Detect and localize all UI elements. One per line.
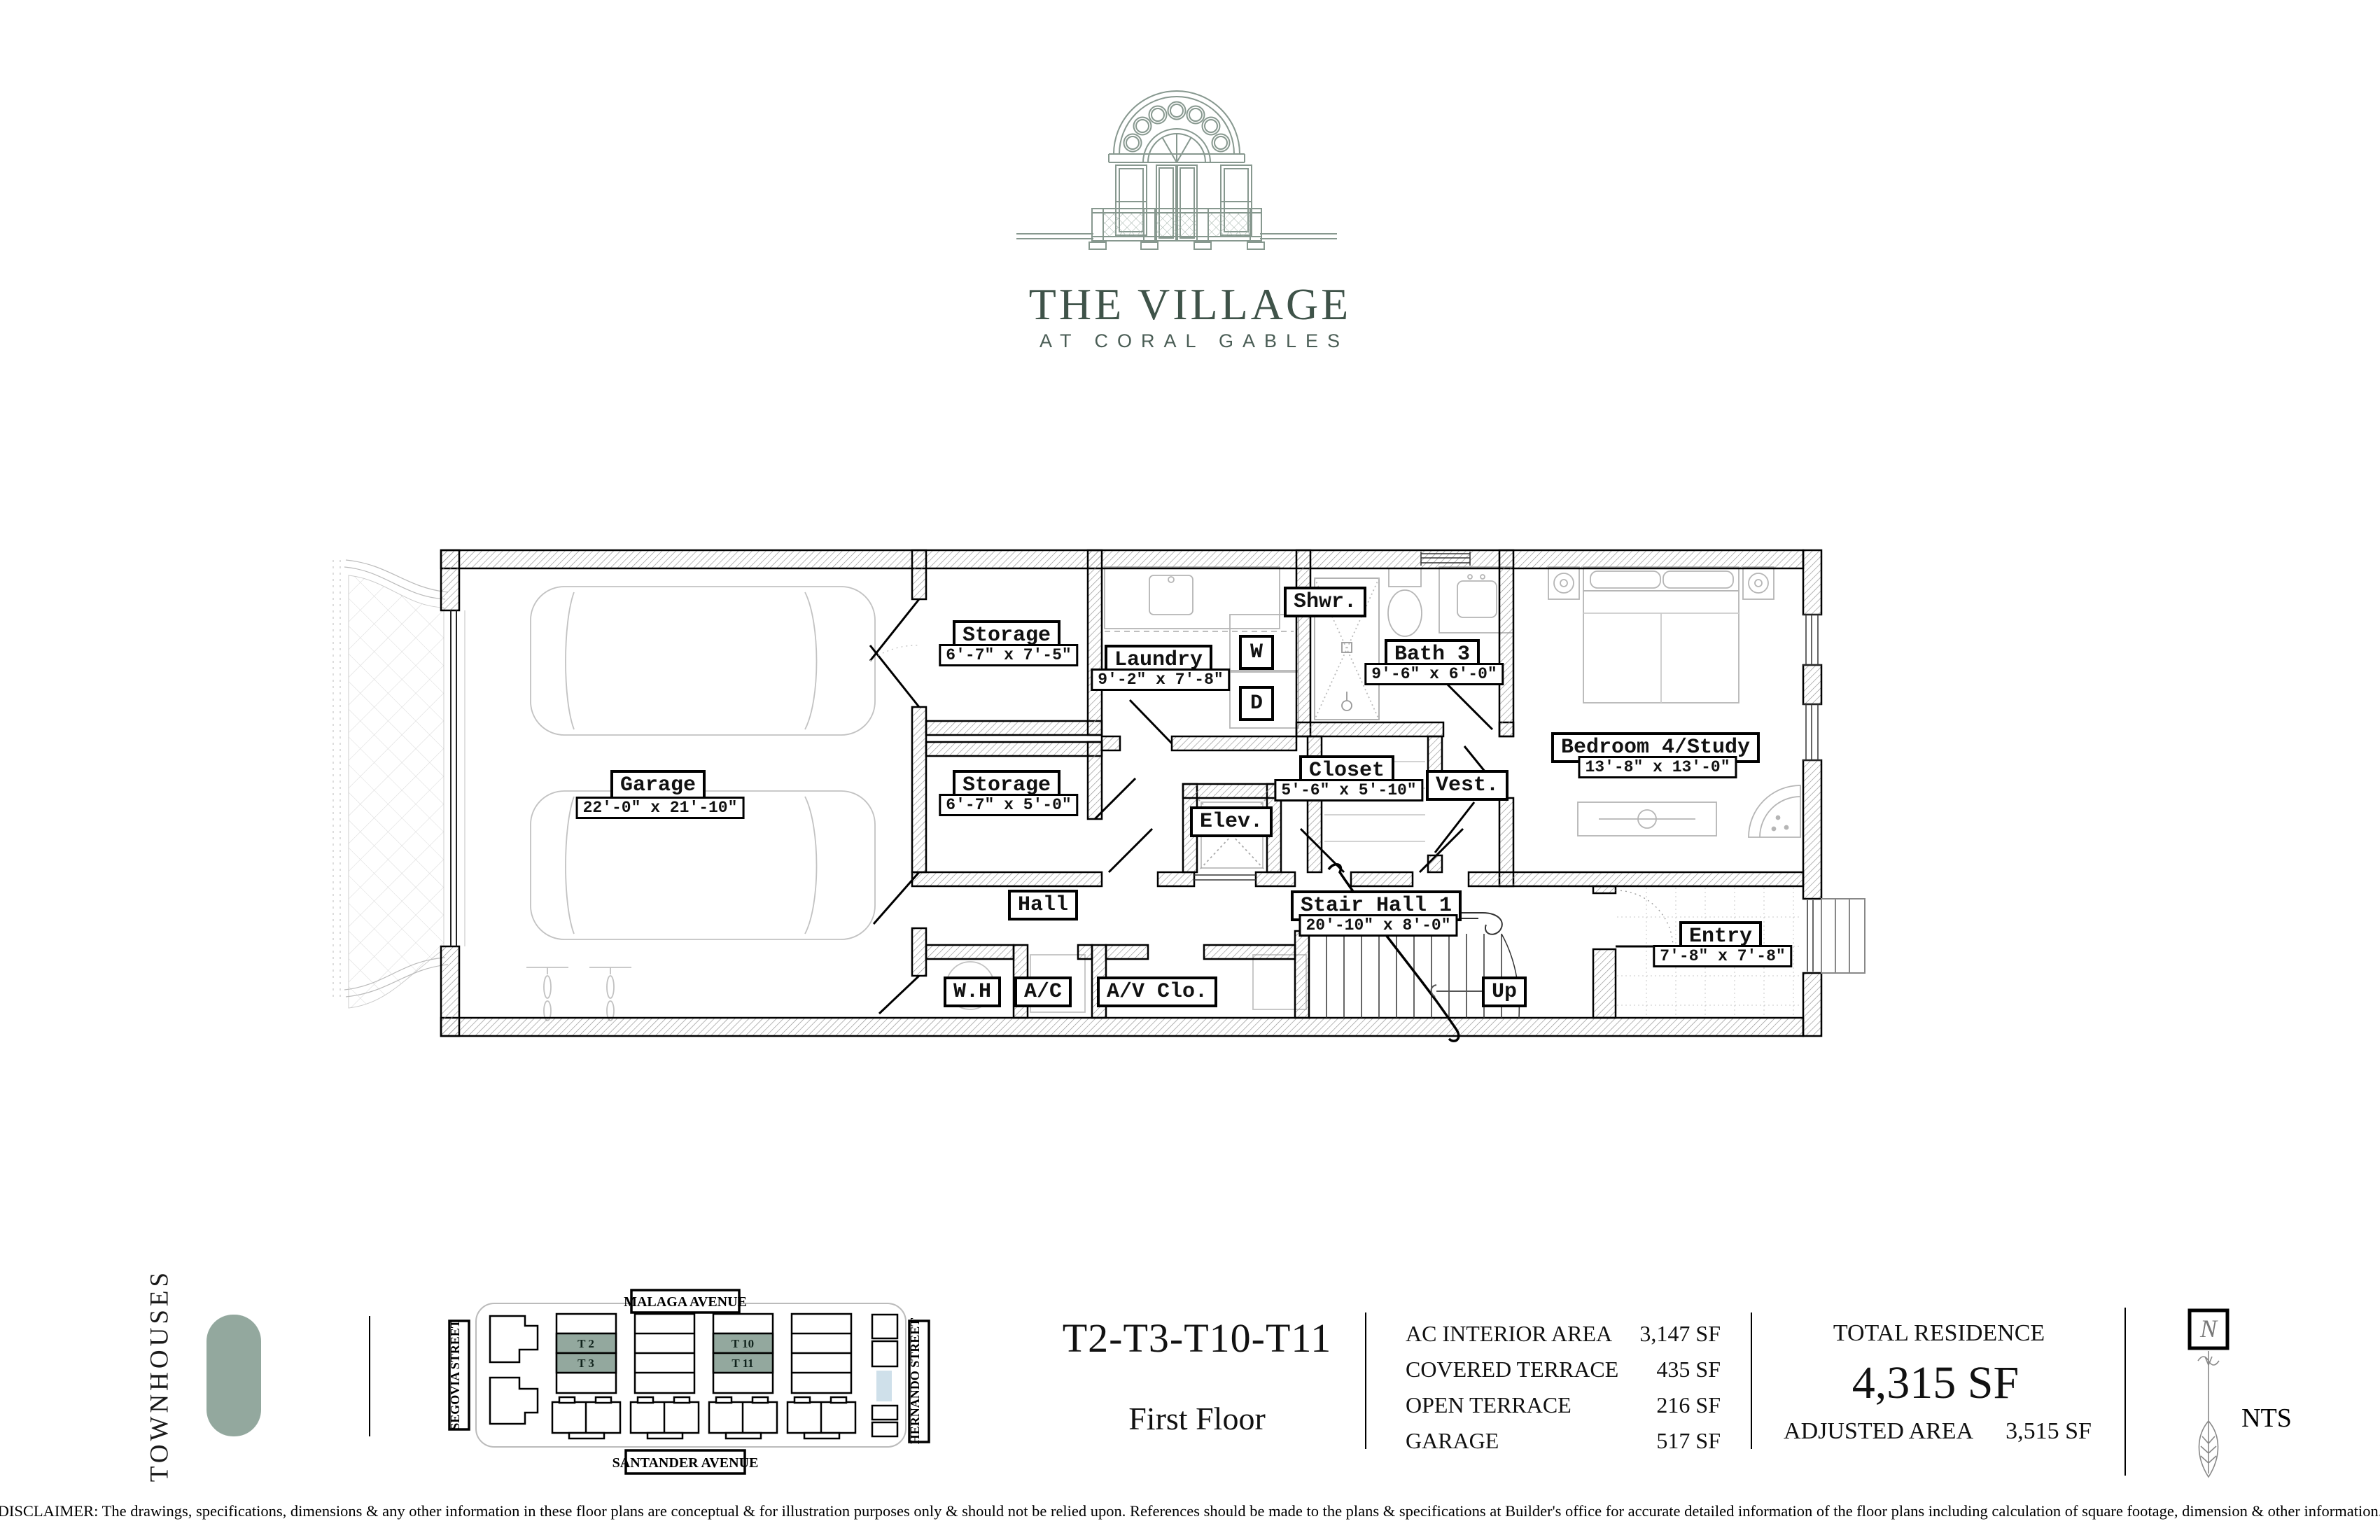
plan-title-units: T2-T3-T10-T11 [1063, 1315, 1332, 1361]
adjusted-area-line: ADJUSTED AREA 3,515 SF [1784, 1418, 2092, 1445]
divider-3 [1751, 1312, 1752, 1449]
north-arrow: N NTS [2156, 1295, 2352, 1491]
room-label-shower: Shwr. [1284, 587, 1366, 617]
total-residence-label: TOTAL RESIDENCE [1833, 1320, 2045, 1347]
scale-label-nts: NTS [2241, 1403, 2292, 1433]
area-row: COVERED TERRACE 435 SF [1406, 1352, 1721, 1387]
toilet [1388, 568, 1422, 636]
adjusted-area-value: 3,515 SF [2005, 1418, 2092, 1445]
room-dim-garage: 22'-0" x 21'-10" [576, 797, 745, 819]
nightstands [1548, 567, 1774, 599]
room-dim-bedroom4: 13'-8" x 13'-0" [1578, 756, 1737, 778]
area-label: GARAGE [1406, 1428, 1499, 1454]
room-dim-bath3: 9'-6" x 6'-0" [1364, 663, 1504, 685]
entry-porch [1807, 899, 1865, 973]
bed [1583, 567, 1739, 703]
pool [876, 1371, 892, 1401]
room-dim-entry: 7'-8" x 7'-8" [1653, 945, 1792, 967]
disclaimer-text: DISCLAIMER: The drawings, specifications… [0, 1502, 2380, 1520]
unit-t10: T 10 [731, 1337, 754, 1350]
room-label-water-heater: W.H [944, 976, 1001, 1007]
brand-subname: AT CORAL GABLES [1039, 330, 1349, 352]
adjusted-area-label: ADJUSTED AREA [1784, 1418, 1973, 1445]
divider-1 [369, 1316, 370, 1436]
stairs-up-label: Up [1482, 976, 1527, 1007]
unit-t3: T 3 [577, 1357, 594, 1370]
north-letter: N [2199, 1315, 2218, 1343]
area-value: 517 SF [1656, 1428, 1721, 1454]
corner-chair [1749, 785, 1800, 837]
divider-2 [1365, 1312, 1366, 1449]
room-dim-laundry: 9'-2" x 7'-8" [1091, 668, 1230, 691]
brand-name: THE VILLAGE [1029, 279, 1352, 330]
car-1 [531, 587, 875, 735]
up-arrow [1431, 985, 1488, 997]
dryer-box: D [1239, 686, 1274, 721]
unit-t11: T 11 [731, 1357, 753, 1370]
room-label-elevator: Elev. [1190, 806, 1273, 837]
plan-title-floor: First Floor [1128, 1400, 1266, 1437]
room-label-av-closet: A/V Clo. [1097, 976, 1217, 1007]
area-value: 3,147 SF [1639, 1321, 1721, 1347]
logo-illustration [1008, 77, 1372, 259]
area-row: GARAGE 517 SF [1406, 1423, 1721, 1459]
room-label-ac: A/C [1014, 976, 1072, 1007]
room-dim-storage-1: 6'-7" x 7'-5" [939, 644, 1078, 666]
area-label: AC INTERIOR AREA [1406, 1321, 1612, 1347]
townhouses-swatch [206, 1315, 261, 1436]
unit-t2: T 2 [577, 1337, 594, 1350]
site-map: T 2 T 3 T 10 T 11 MALAGA AVENUE SANTANDE… [434, 1284, 952, 1487]
room-label-hall: Hall [1008, 890, 1078, 920]
area-row: OPEN TERRACE 216 SF [1406, 1387, 1721, 1423]
street-label-malaga: MALAGA AVENUE [624, 1294, 747, 1310]
divider-4 [2124, 1308, 2126, 1476]
driveway [333, 560, 448, 1008]
garage-door [451, 610, 465, 946]
washer-box: W [1239, 635, 1274, 670]
street-label-santander: SANTANDER AVENUE [612, 1455, 759, 1471]
room-label-vestibule: Vest. [1426, 770, 1508, 801]
street-label-segovia: SEGOVIA STREET [448, 1319, 462, 1430]
room-dim-closet: 5'-6" x 5'-10" [1274, 779, 1423, 801]
bicycles [526, 967, 631, 1021]
floor-plan-sheet: { "brand": { "name": "THE VILLAGE", "sub… [0, 0, 2380, 1540]
section-label-townhouses: TOWNHOUSES [145, 1269, 175, 1482]
area-row: AC INTERIOR AREA 3,147 SF [1406, 1316, 1721, 1352]
street-label-hernando: HERNANDO STREET [908, 1318, 922, 1445]
total-residence-value: 4,315 SF [1852, 1357, 2019, 1410]
elevator-door [1194, 875, 1256, 880]
room-dim-stair-hall: 20'-10" x 8'-0" [1298, 914, 1457, 937]
area-value: 435 SF [1656, 1357, 1721, 1382]
dresser [1578, 802, 1716, 836]
area-value: 216 SF [1656, 1392, 1721, 1418]
area-label: OPEN TERRACE [1406, 1392, 1571, 1418]
room-dim-storage-2: 6'-7" x 5'-0" [939, 794, 1078, 816]
floor-plan-drawing [308, 532, 1890, 1050]
area-table: AC INTERIOR AREA 3,147 SF COVERED TERRAC… [1406, 1316, 1721, 1459]
area-label: COVERED TERRACE [1406, 1357, 1618, 1382]
